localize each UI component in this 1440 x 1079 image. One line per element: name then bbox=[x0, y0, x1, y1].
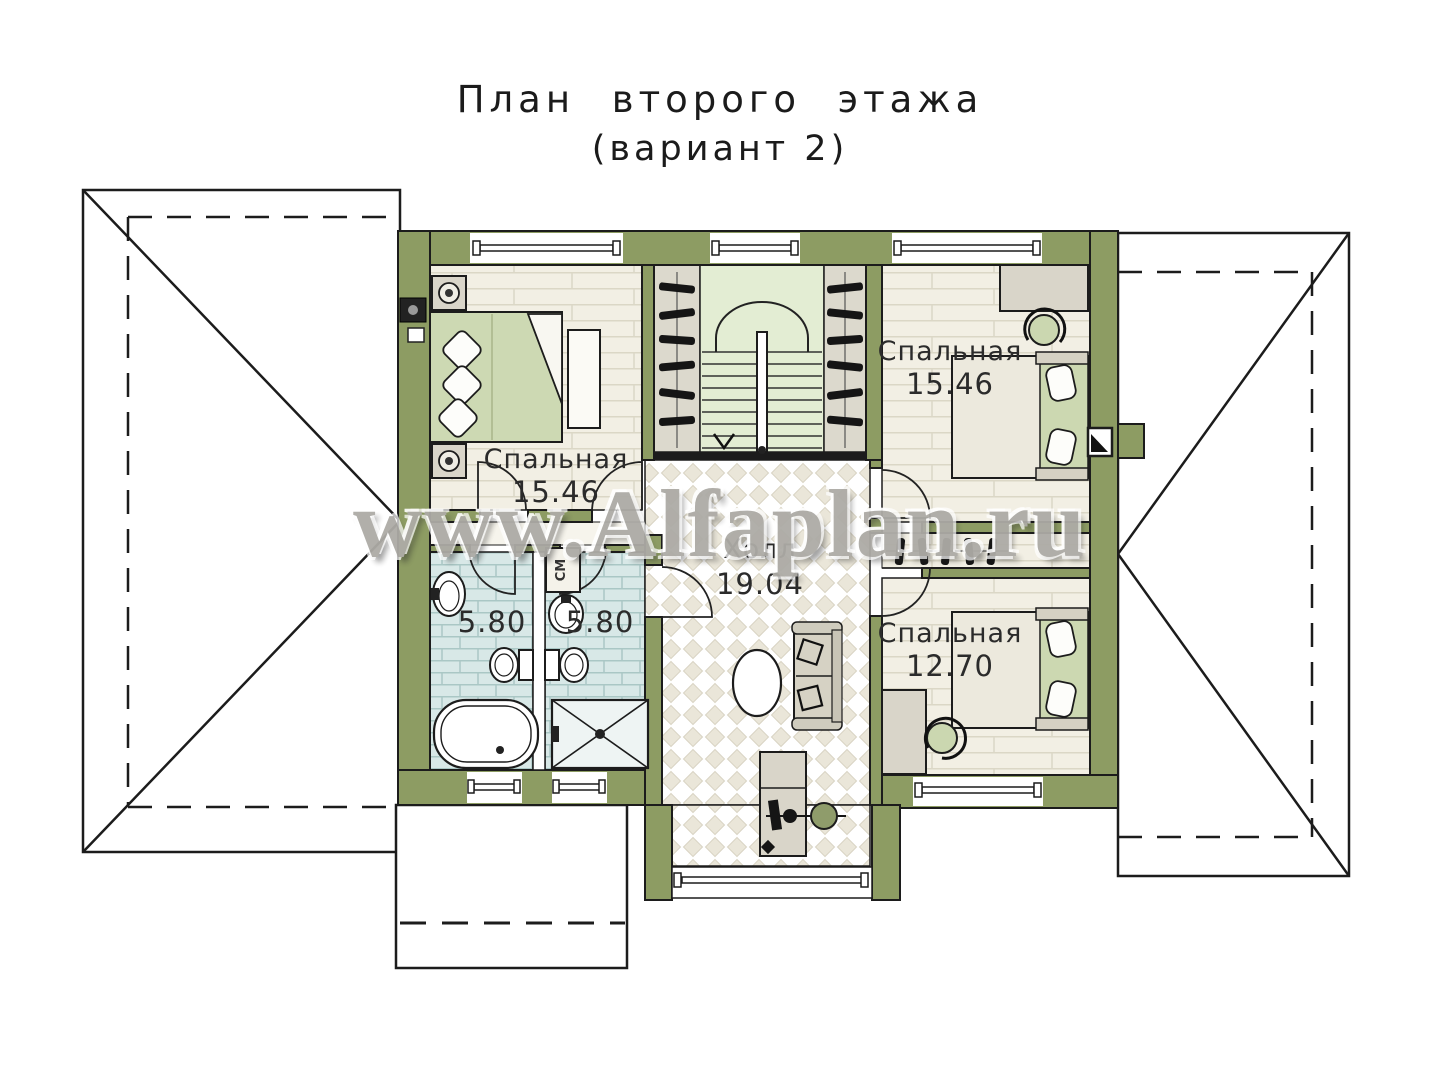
window-bedroom-bottom-right bbox=[913, 777, 1043, 806]
bedroom-top-right-name: Спальная bbox=[878, 336, 1023, 367]
bathtub-icon bbox=[434, 700, 538, 768]
coffee-table-icon bbox=[733, 650, 781, 716]
window-bath-left bbox=[467, 772, 522, 803]
window-bath-right bbox=[552, 772, 607, 803]
stair-rail bbox=[757, 332, 767, 452]
window-top-stair bbox=[710, 233, 800, 263]
desk-icon bbox=[1000, 265, 1088, 311]
chair-icon bbox=[927, 723, 957, 753]
bedroom-top-right-area: 15.46 bbox=[906, 367, 994, 401]
sofa-icon bbox=[792, 622, 842, 730]
window-hall-bottom bbox=[672, 867, 872, 898]
double-bed-icon bbox=[430, 312, 562, 442]
shower-icon bbox=[552, 700, 648, 768]
lower-dormer-outline bbox=[396, 805, 627, 968]
floor-plan-page: План второго этажа (вариант 2) bbox=[0, 0, 1440, 1079]
chair-icon bbox=[1029, 315, 1059, 345]
bedroom-bottom-right-name: Спальная bbox=[878, 618, 1023, 649]
dresser-icon bbox=[568, 330, 600, 428]
chair-icon bbox=[811, 803, 837, 829]
bathroom-left-area: 5.80 bbox=[458, 605, 527, 639]
toilet-icon bbox=[490, 648, 533, 682]
right-roof bbox=[1118, 233, 1349, 876]
window-top-left bbox=[470, 233, 623, 263]
desk-icon bbox=[882, 690, 926, 774]
bedroom-bottom-right-area: 12.70 bbox=[906, 649, 994, 683]
bathroom-right-area: 5.80 bbox=[566, 605, 635, 639]
toilet-icon bbox=[545, 648, 588, 682]
window-top-right bbox=[892, 233, 1042, 263]
watermark: www.Alfaplan.ru bbox=[353, 468, 1087, 579]
